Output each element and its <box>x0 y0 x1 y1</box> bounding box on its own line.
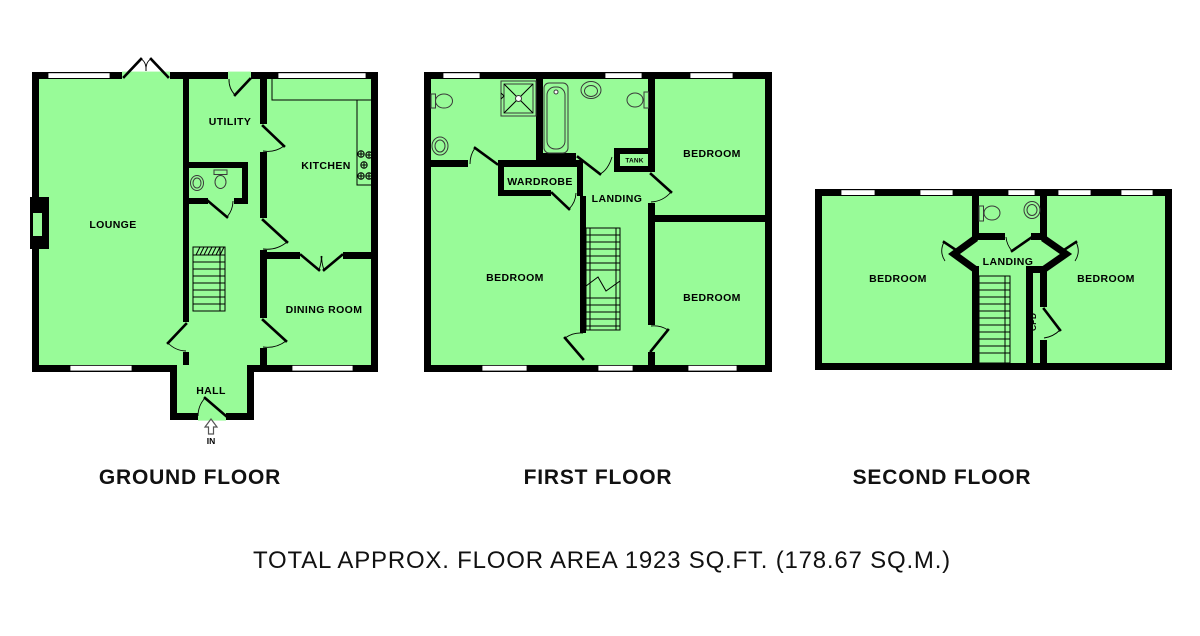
sink-icon <box>581 82 601 99</box>
floorplan-page: LOUNGE UTILITY KITCHEN DINING ROOM HALL … <box>0 0 1200 636</box>
room-label-lounge: LOUNGE <box>89 219 136 231</box>
sink-icon <box>432 137 448 155</box>
bathtub-icon <box>544 83 568 153</box>
room-label-landing: LANDING <box>983 256 1034 268</box>
sink-icon <box>1024 202 1040 219</box>
room-label-wardrobe: WARDROBE <box>507 176 573 188</box>
room-label-bedroom-left: BEDROOM <box>869 273 927 285</box>
sink-icon <box>191 176 204 191</box>
room-label-tank: TANK <box>625 158 643 165</box>
chimney-breast <box>30 197 49 249</box>
room-label-utility: UTILITY <box>209 116 251 128</box>
room-label-bedroom-bottom-right: BEDROOM <box>683 292 741 304</box>
entrance-arrow-icon <box>205 419 217 434</box>
first-floor-plan: BEDROOM BEDROOM BEDROOM LANDING WARDROBE… <box>424 72 772 489</box>
second-floor-plan: BEDROOM BEDROOM LANDING CPD SECOND FLOOR <box>815 189 1172 489</box>
toilet-icon <box>627 92 649 108</box>
room-label-landing: LANDING <box>592 193 643 205</box>
ground-floor-title: GROUND FLOOR <box>99 466 281 489</box>
room-label-cupboard: CPD <box>1028 313 1038 331</box>
toilet-icon <box>979 206 1000 221</box>
room-label-hall: HALL <box>196 385 226 397</box>
entrance-label: IN <box>207 436 216 446</box>
toilet-icon <box>431 94 453 108</box>
room-label-bedroom-right: BEDROOM <box>1077 273 1135 285</box>
shower-icon <box>501 81 536 116</box>
ground-floor-plan: LOUNGE UTILITY KITCHEN DINING ROOM HALL … <box>30 59 378 489</box>
second-floor-title: SECOND FLOOR <box>853 466 1032 489</box>
total-floor-area-caption: TOTAL APPROX. FLOOR AREA 1923 SQ.FT. (17… <box>253 547 951 574</box>
room-label-bedroom-left: BEDROOM <box>486 272 544 284</box>
toilet-icon <box>214 170 227 189</box>
room-label-dining-room: DINING ROOM <box>286 304 363 316</box>
room-label-bedroom-top-right: BEDROOM <box>683 148 741 160</box>
floorplan-image: LOUNGE UTILITY KITCHEN DINING ROOM HALL … <box>0 0 1200 636</box>
room-label-kitchen: KITCHEN <box>301 160 350 172</box>
first-floor-title: FIRST FLOOR <box>524 466 673 489</box>
